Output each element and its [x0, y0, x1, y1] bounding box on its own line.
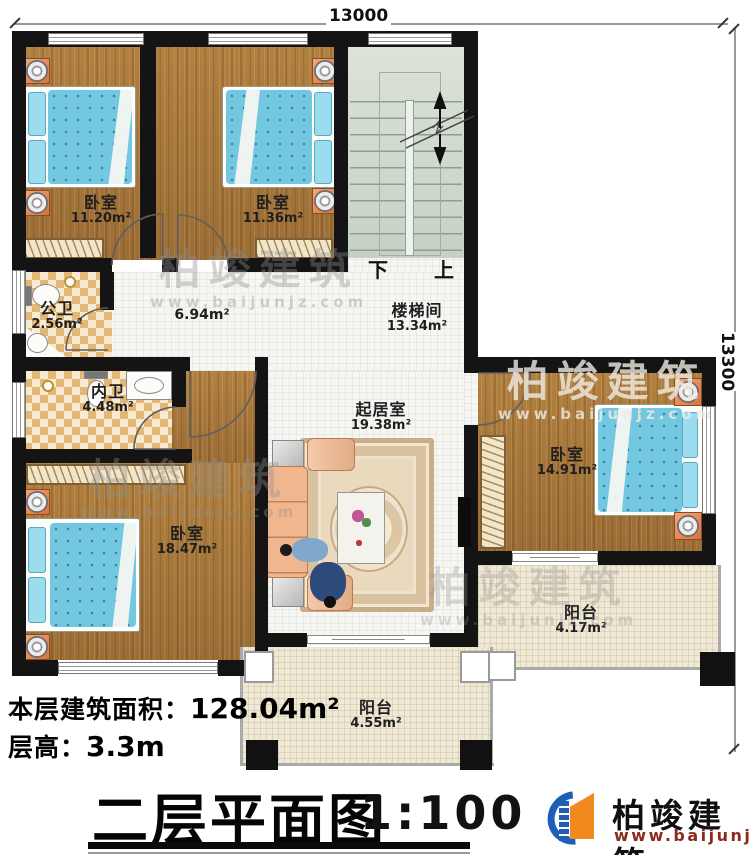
stair-break-line: [400, 110, 474, 148]
room-name: 内卫: [68, 383, 148, 401]
brand-name: 柏竣建筑: [612, 789, 746, 855]
room-area: 11.20m²: [41, 212, 161, 227]
room-name: 卧室: [213, 194, 333, 212]
watermark-url: www.baijunjz.com: [80, 503, 297, 521]
watermark: 柏竣建筑 www.baijunjz.com: [498, 348, 715, 423]
watermark-url: www.baijunjz.com: [150, 293, 367, 311]
watermark: 柏竣建筑 www.baijunjz.com: [80, 446, 297, 521]
room-label-public-bath: 公卫 2.56m²: [17, 300, 97, 332]
title-underline: [88, 842, 470, 849]
floor-plan-sheet: 卧室 11.20m² 卧室 11.36m² 楼梯间 13.34m² 6.94m²…: [0, 0, 750, 855]
brand-url: www.baijunjz.com: [614, 826, 750, 845]
room-area: 19.38m²: [321, 419, 441, 434]
room-label-private-bath: 内卫 4.48m²: [68, 383, 148, 415]
floor-height-line: 层高：3.3m: [8, 728, 165, 764]
room-area: 14.91m²: [507, 464, 627, 479]
room-area: 13.34m²: [357, 320, 477, 335]
room-label-bedroom-tm: 卧室 11.36m²: [213, 194, 333, 226]
title-underline-thin: [88, 852, 470, 854]
floor-area-value: 128.04m²: [190, 692, 340, 725]
room-name: 公卫: [17, 300, 97, 318]
floor-area-label: 本层建筑面积：: [8, 695, 190, 724]
watermark: 柏竣建筑 www.baijunjz.com: [420, 554, 637, 629]
stair-up-label: 上: [434, 254, 454, 283]
stair-direction-arrows: [435, 94, 445, 162]
room-name: 卧室: [507, 446, 627, 464]
room-name: 起居室: [321, 401, 441, 419]
room-name: 楼梯间: [357, 302, 477, 320]
room-name: 卧室: [41, 194, 161, 212]
watermark-text: 柏竣建筑: [150, 236, 367, 297]
logo-building-blue-icon: [559, 801, 569, 841]
room-area: 2.56m²: [17, 318, 97, 333]
room-name: 卧室: [127, 525, 247, 543]
floor-height-label: 层高：: [8, 733, 86, 762]
room-label-bedroom-r: 卧室 14.91m²: [507, 446, 627, 478]
watermark: 柏竣建筑 www.baijunjz.com: [150, 236, 367, 311]
floor-height-value: 3.3m: [86, 730, 165, 763]
room-area: 4.48m²: [68, 401, 148, 416]
stair-down-label: 下: [368, 254, 388, 283]
watermark-url: www.baijunjz.com: [420, 611, 637, 629]
brand-logo-icon: [546, 785, 608, 849]
watermark-text: 柏竣建筑: [80, 446, 297, 507]
watermark-url: www.baijunjz.com: [498, 405, 715, 423]
room-label-bedroom-tl: 卧室 11.20m²: [41, 194, 161, 226]
room-label-stairwell: 楼梯间 13.34m²: [357, 302, 477, 334]
room-label-bedroom-bl: 卧室 18.47m²: [127, 525, 247, 557]
room-area: 18.47m²: [127, 543, 247, 558]
sheet-scale: 1:100: [360, 786, 526, 840]
watermark-text: 柏竣建筑: [498, 348, 715, 409]
floor-area-line: 本层建筑面积：128.04m²: [8, 690, 340, 726]
room-label-living: 起居室 19.38m²: [321, 401, 441, 433]
room-area: 11.36m²: [213, 212, 333, 227]
brand-logo: 柏竣建筑 www.baijunjz.com: [546, 785, 746, 851]
watermark-text: 柏竣建筑: [420, 554, 637, 615]
